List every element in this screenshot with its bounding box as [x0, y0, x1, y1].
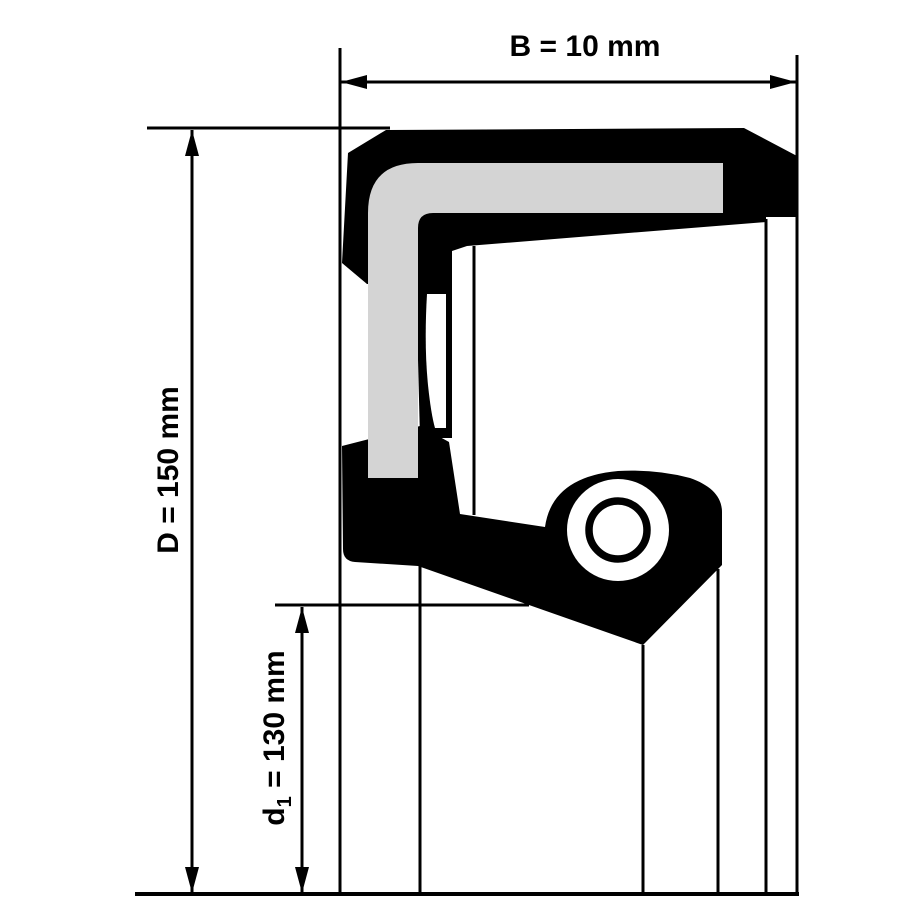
garter-spring-bore	[567, 479, 669, 581]
dimension-B: B = 10 mm	[341, 30, 796, 89]
dim-d1-arrow-bottom	[295, 867, 309, 893]
dim-d-arrow-top	[185, 130, 199, 156]
dim-b-label: B = 10 mm	[510, 30, 661, 63]
dimension-d1: d1 = 130 mm	[258, 607, 309, 893]
diagram-canvas: B = 10 mm D = 150 mm d1 = 130 mm	[0, 0, 900, 900]
dim-d1-arrow-top	[295, 607, 309, 633]
dim-d-label: D = 150 mm	[152, 386, 185, 554]
dim-d-arrow-bottom	[185, 867, 199, 893]
dim-d1-label: d1 = 130 mm	[258, 650, 296, 825]
seal-cross-section-diagram: B = 10 mm D = 150 mm d1 = 130 mm	[0, 0, 900, 900]
dim-b-arrow-left	[341, 75, 367, 89]
dimension-D: D = 150 mm	[152, 130, 199, 893]
dim-b-arrow-right	[770, 75, 796, 89]
